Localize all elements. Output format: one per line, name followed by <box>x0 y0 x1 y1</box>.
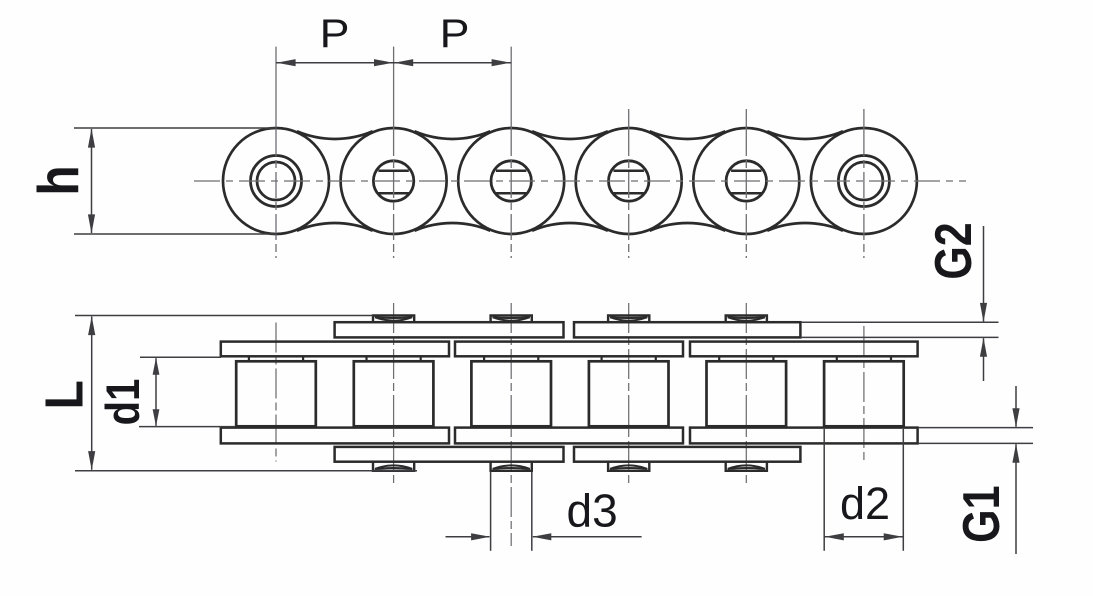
svg-text:P: P <box>320 11 350 55</box>
svg-text:d1: d1 <box>97 379 150 426</box>
svg-text:G1: G1 <box>954 486 1012 543</box>
svg-text:G2: G2 <box>926 222 984 279</box>
svg-text:P: P <box>440 11 470 55</box>
svg-text:L: L <box>34 380 94 409</box>
svg-text:h: h <box>27 165 91 196</box>
svg-text:d2: d2 <box>840 478 890 529</box>
svg-text:d3: d3 <box>567 485 618 537</box>
